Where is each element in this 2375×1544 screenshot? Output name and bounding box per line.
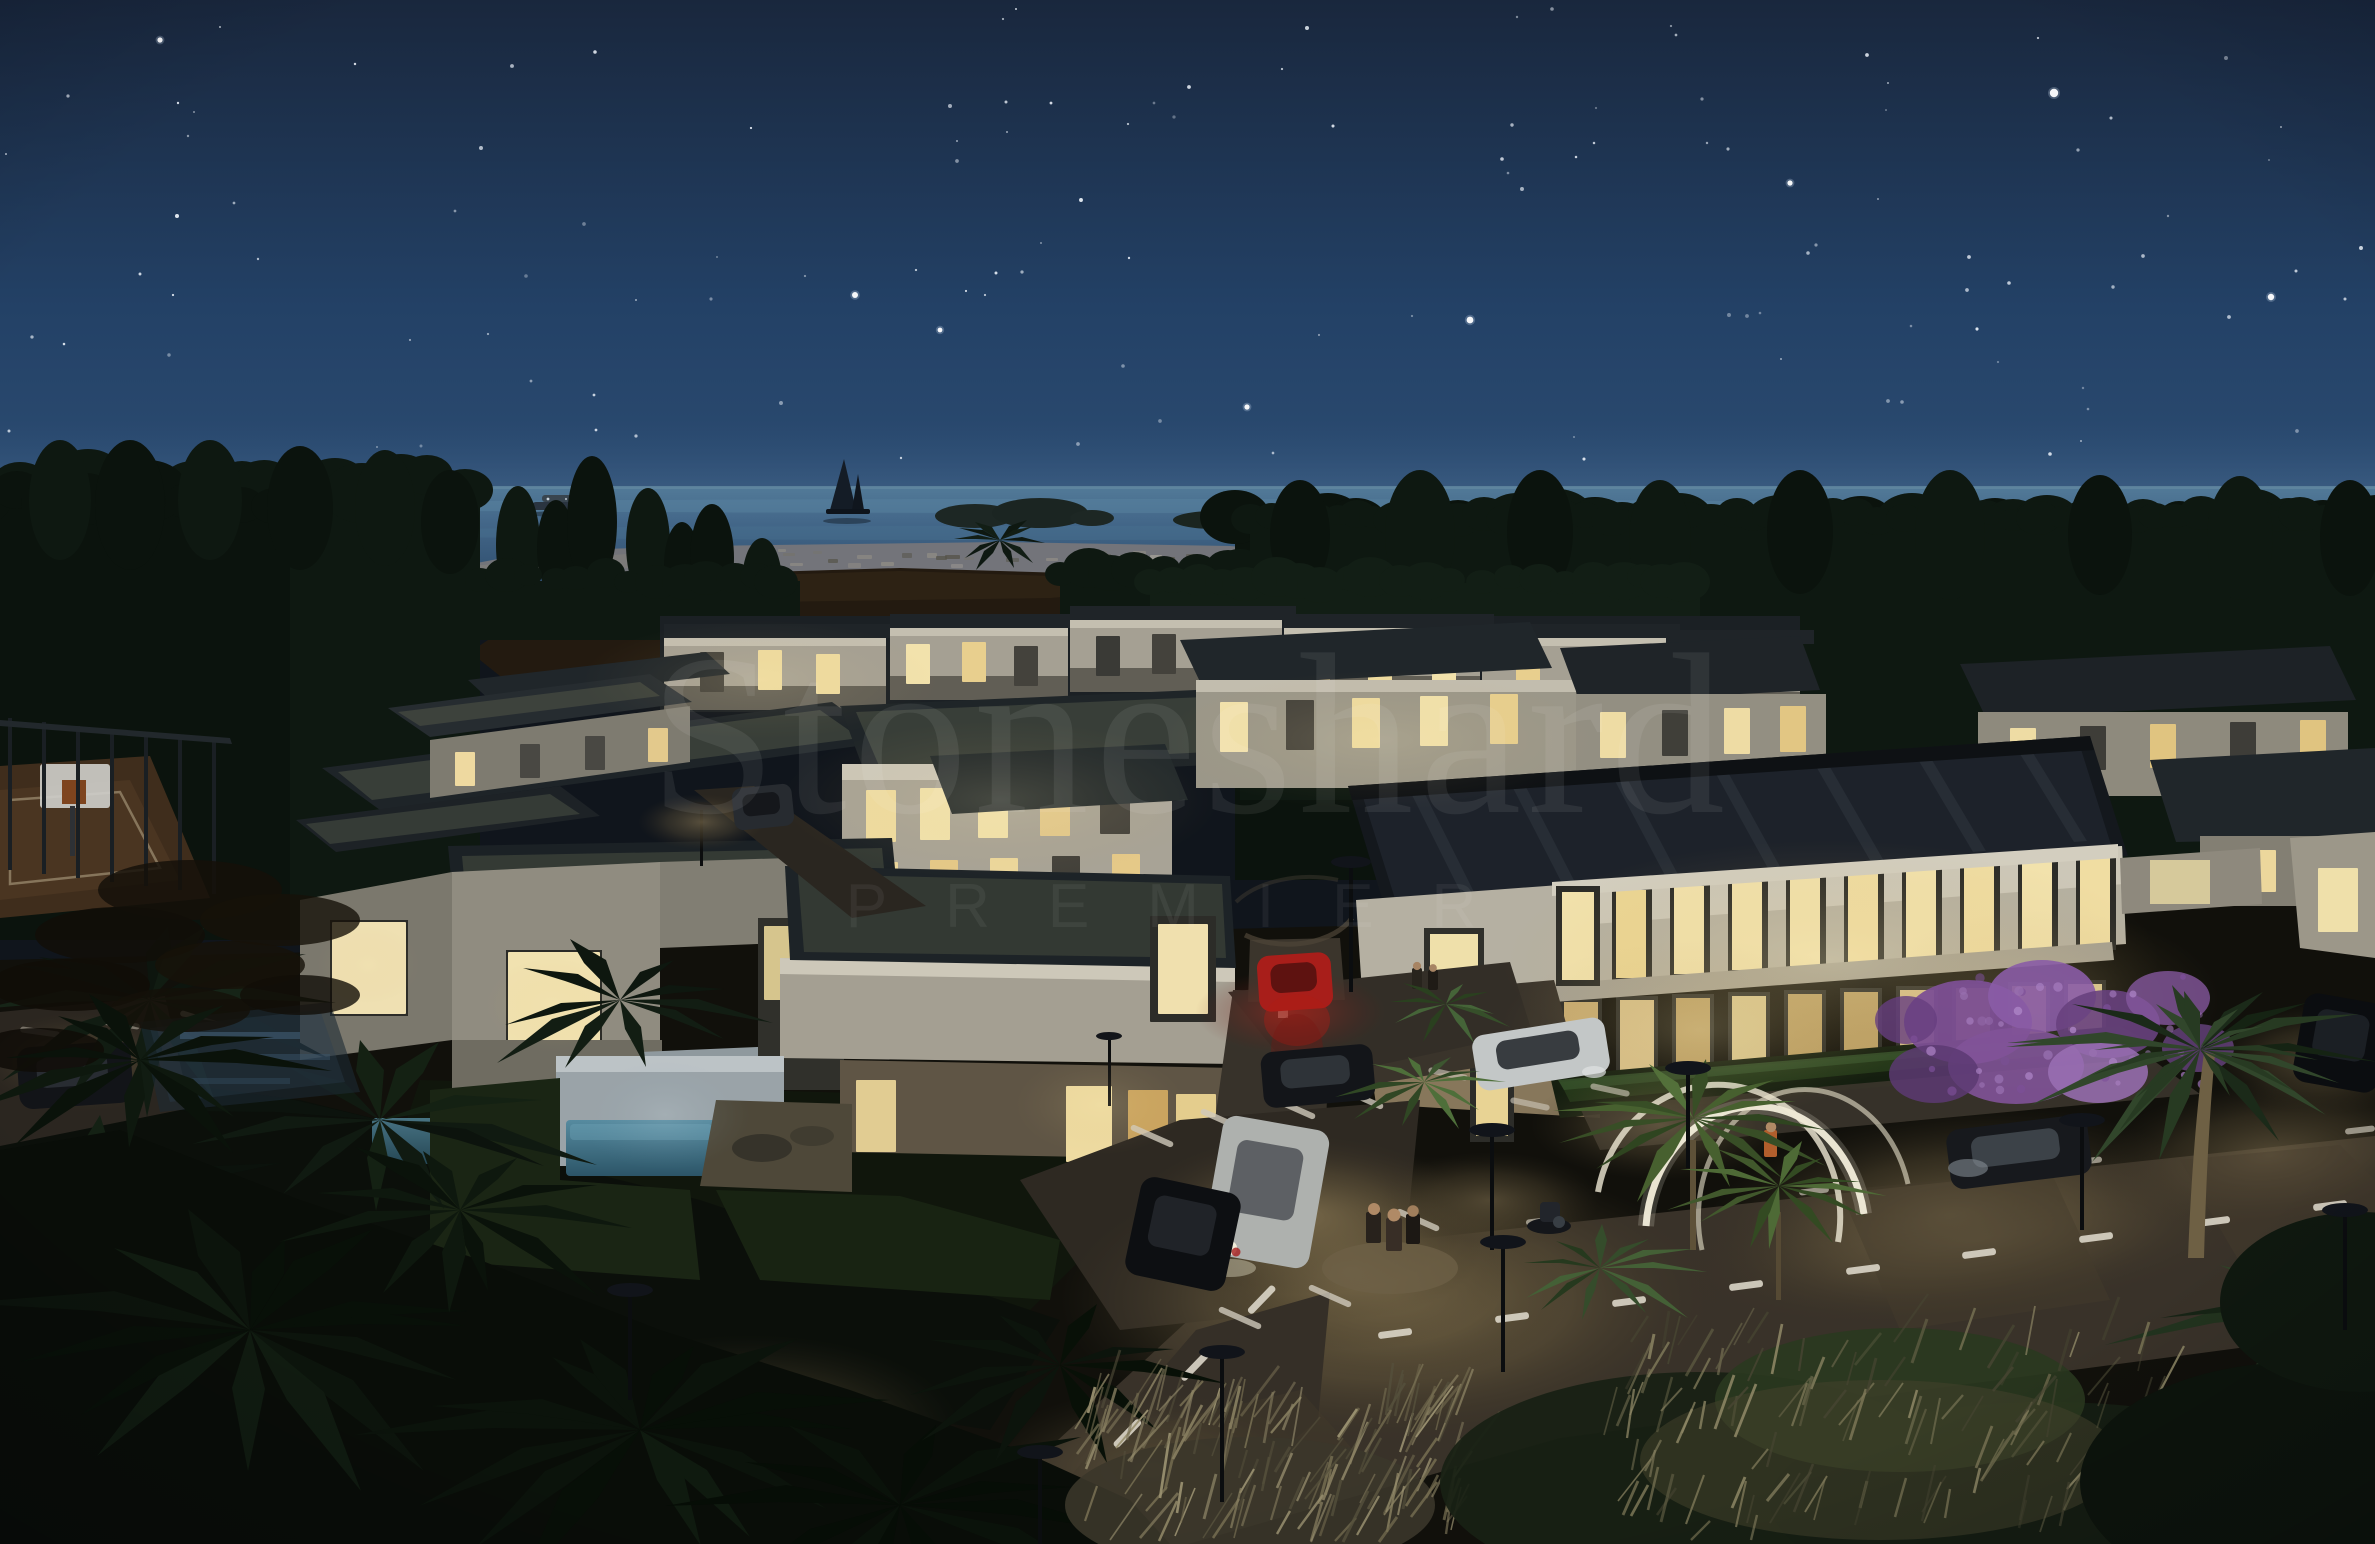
svg-text:Stoneshard: Stoneshard <box>649 607 1731 862</box>
svg-text:PREMIER: PREMIER <box>846 872 1534 941</box>
